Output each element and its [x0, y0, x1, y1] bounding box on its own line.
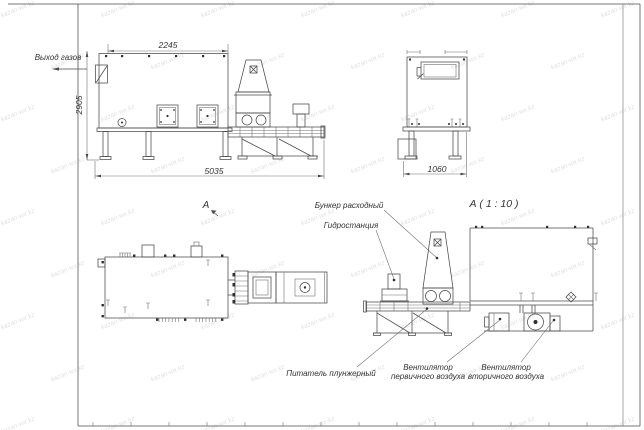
- flue-outlet: [96, 65, 108, 83]
- gas-outlet-label: Выход газов: [35, 53, 82, 62]
- hydraulic-station-detail: [380, 274, 409, 301]
- feeder-support-frame-front: [238, 137, 318, 159]
- feeder-plan: [228, 271, 327, 304]
- detail-title: А ( 1 : 10 ): [468, 198, 518, 210]
- plunger-housing-front: [234, 92, 272, 127]
- gas-outlet-note: Выход газов: [35, 53, 87, 71]
- hatch-left: [142, 245, 154, 257]
- feed-hopper-label: Бункер расходный: [315, 201, 384, 210]
- view-a-arrow-icon: [211, 210, 217, 214]
- drawing-sheet: kazan-wx.kzkazan-wx.kzkazan-wx.kzkazan-w…: [0, 0, 644, 430]
- sheet-frame: [8, 4, 640, 426]
- detail-view-a: А ( 1 : 10 ) Бункер расходный Гидростанц…: [286, 198, 598, 381]
- view-a-letter: А: [202, 200, 210, 211]
- feeder-beam-front: [228, 126, 325, 138]
- hydraulic-station-plan: [276, 272, 327, 303]
- svg-text:вторичного воздуха: вторичного воздуха: [468, 372, 545, 381]
- svg-text:первичного воздуха: первичного воздуха: [391, 372, 466, 381]
- secondary-fan-callout: Вентилятор вторичного воздуха: [468, 321, 553, 381]
- side-view: 1060: [398, 50, 470, 177]
- front-view: 2245 2905: [74, 40, 325, 179]
- drain-port: [118, 119, 126, 127]
- burner-door-right: [197, 105, 218, 127]
- secondary-air-fan: [524, 313, 560, 331]
- primary-air-fan: [485, 313, 510, 331]
- technical-drawing: Выход газов 2245 2905: [0, 0, 644, 430]
- plunger-feeder-detail: [364, 301, 471, 336]
- flange-diamond: [566, 292, 576, 302]
- dim-upper-width-text: 2245: [158, 40, 178, 50]
- burner-door-left: [157, 105, 178, 127]
- hydraulic-station-front: [293, 104, 309, 127]
- plunger-feeder-label: Питатель плунжерный: [286, 369, 376, 378]
- dim-side-width-text: 1060: [428, 164, 447, 174]
- anchor-bolts: [102, 255, 224, 321]
- dim-total-length: 5035: [95, 140, 324, 179]
- svg-text:Вентилятор: Вентилятор: [481, 363, 531, 372]
- feed-hopper-front: [238, 60, 269, 92]
- hydraulic-station-label: Гидростанция: [324, 221, 379, 230]
- svg-text:Вентилятор: Вентилятор: [403, 363, 453, 372]
- dim-upper-width: 2245: [108, 40, 228, 54]
- view-a-marker: А: [202, 200, 218, 216]
- gas-outlet-arrow-icon: [52, 67, 59, 70]
- dim-height-text: 2905: [74, 95, 84, 115]
- dim-total-length-text: 5035: [205, 166, 224, 176]
- plan-view: А: [98, 200, 327, 322]
- furnace-body: [96, 54, 233, 160]
- feeder-assembly: [228, 60, 325, 159]
- feed-hopper-plan: [248, 272, 276, 303]
- hatch-right: [191, 246, 202, 257]
- inspection-window: [417, 62, 459, 79]
- feed-hopper-detail: [423, 232, 453, 304]
